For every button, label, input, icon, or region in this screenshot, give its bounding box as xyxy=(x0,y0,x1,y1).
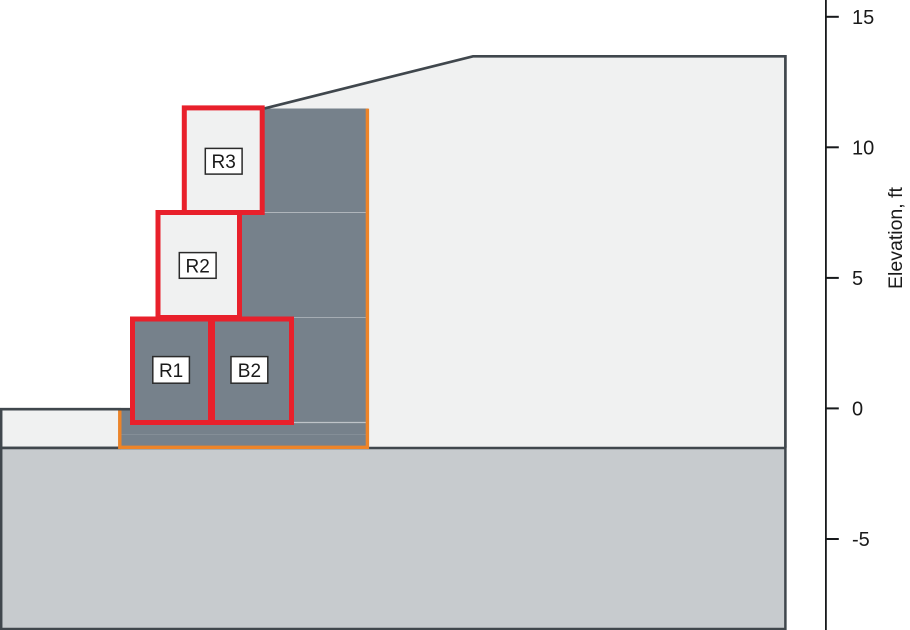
svg-text:B2: B2 xyxy=(238,361,261,382)
svg-text:R2: R2 xyxy=(186,256,210,277)
svg-text:0: 0 xyxy=(852,399,863,421)
svg-text:10: 10 xyxy=(852,138,874,160)
svg-text:R3: R3 xyxy=(212,152,236,173)
svg-text:15: 15 xyxy=(852,7,874,29)
svg-text:R1: R1 xyxy=(159,361,183,382)
svg-text:Elevation, ft: Elevation, ft xyxy=(885,186,907,288)
svg-text:-5: -5 xyxy=(852,529,870,551)
svg-text:5: 5 xyxy=(852,268,863,290)
